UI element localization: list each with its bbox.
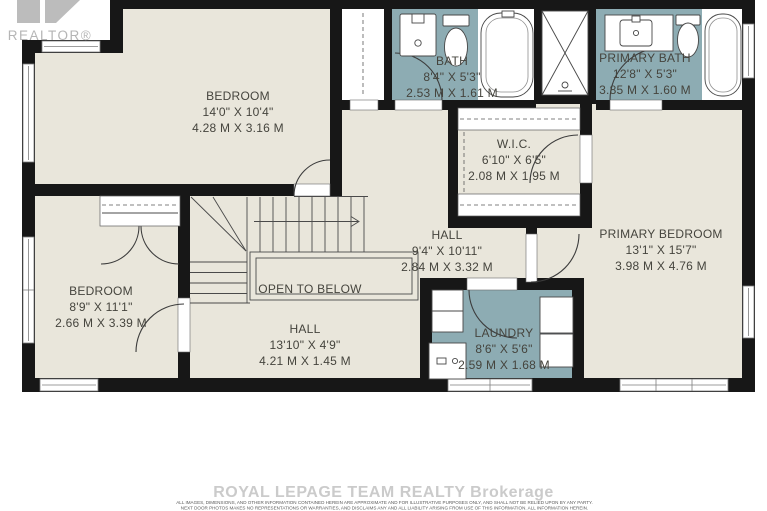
window: [743, 286, 754, 338]
window: [23, 64, 34, 162]
window: [40, 379, 98, 391]
realtor-logo-text: REALTOR®: [8, 28, 92, 43]
room-label-bath: BATH 8'4" X 5'3" 2.53 M X 1.61 M: [372, 53, 532, 101]
room-label-primary-bath: PRIMARY BATH 12'8" X 5'3" 3.85 M X 1.60 …: [565, 50, 725, 98]
bedroom-closet: [100, 196, 180, 226]
realtor-r-icon: REALTOR®: [4, 0, 96, 46]
floorplan-page: BEDROOM 14'0" X 10'4" 4.28 M X 3.16 M BA…: [0, 0, 767, 511]
window: [620, 379, 728, 391]
room-label-bedroom-left: BEDROOM 8'9" X 11'1" 2.66 M X 3.39 M: [11, 283, 191, 331]
room-label-hall-upper: HALL 9'4" X 10'11" 2.84 M X 3.32 M: [367, 227, 527, 275]
room-label-primary-bedroom: PRIMARY BEDROOM 13'1" X 15'7" 3.98 M X 4…: [571, 226, 751, 274]
window: [743, 24, 754, 78]
disclaimer-text: ALL IMAGES, DIMENSIONS, AND OTHER INFORM…: [1, 500, 767, 511]
label-open-to-below: OPEN TO BELOW: [230, 281, 390, 297]
primary-sink: [620, 20, 652, 46]
room-label-bedroom-top: BEDROOM 14'0" X 10'4" 4.28 M X 3.16 M: [138, 88, 338, 136]
realtor-logo: REALTOR®: [4, 0, 96, 51]
room-label-laundry: LAUNDRY 8'6" X 5'6" 2.59 M X 1.68 M: [424, 325, 584, 373]
room-label-wic: W.I.C. 6'10" X 6'5" 2.08 M X 1.95 M: [434, 136, 594, 184]
bath-toilet: [443, 15, 469, 26]
room-label-hall-lower: HALL 13'10" X 4'9" 4.21 M X 1.45 M: [215, 321, 395, 369]
window: [448, 379, 532, 391]
